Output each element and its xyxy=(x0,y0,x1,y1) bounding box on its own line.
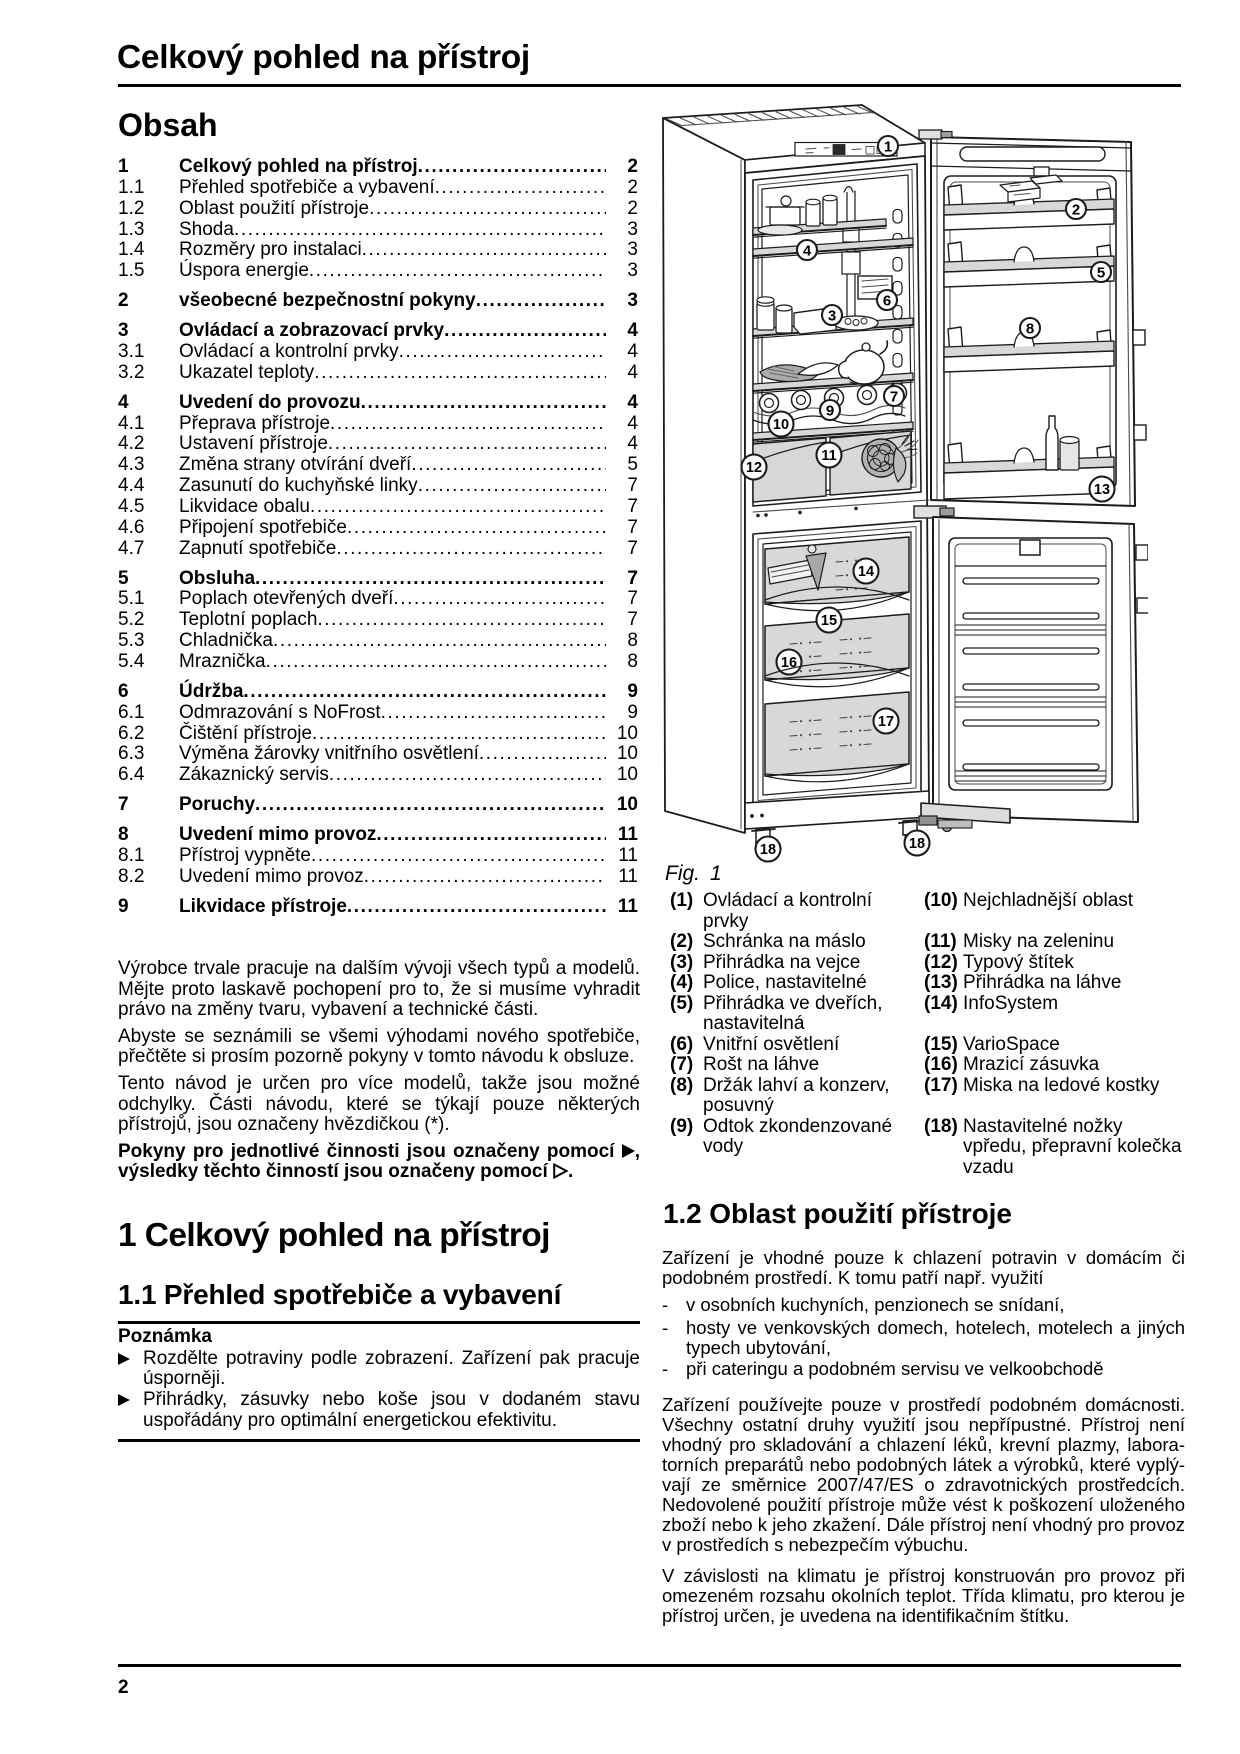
svg-text:8: 8 xyxy=(1026,320,1034,337)
svg-text:15: 15 xyxy=(821,613,837,629)
svg-text:5: 5 xyxy=(1097,264,1105,281)
svg-text:3: 3 xyxy=(828,307,836,324)
svg-text:11: 11 xyxy=(821,448,836,464)
svg-text:7: 7 xyxy=(890,388,898,405)
svg-text:10: 10 xyxy=(773,417,789,433)
svg-text:1: 1 xyxy=(884,138,892,155)
svg-text:2: 2 xyxy=(1072,201,1080,218)
svg-text:18: 18 xyxy=(909,836,925,852)
svg-text:14: 14 xyxy=(858,564,874,580)
svg-text:9: 9 xyxy=(826,402,834,419)
svg-text:13: 13 xyxy=(1094,482,1110,498)
svg-text:4: 4 xyxy=(803,242,812,259)
svg-text:6: 6 xyxy=(883,292,891,309)
svg-text:18: 18 xyxy=(760,842,776,858)
svg-text:17: 17 xyxy=(878,714,894,730)
svg-text:12: 12 xyxy=(746,460,762,476)
